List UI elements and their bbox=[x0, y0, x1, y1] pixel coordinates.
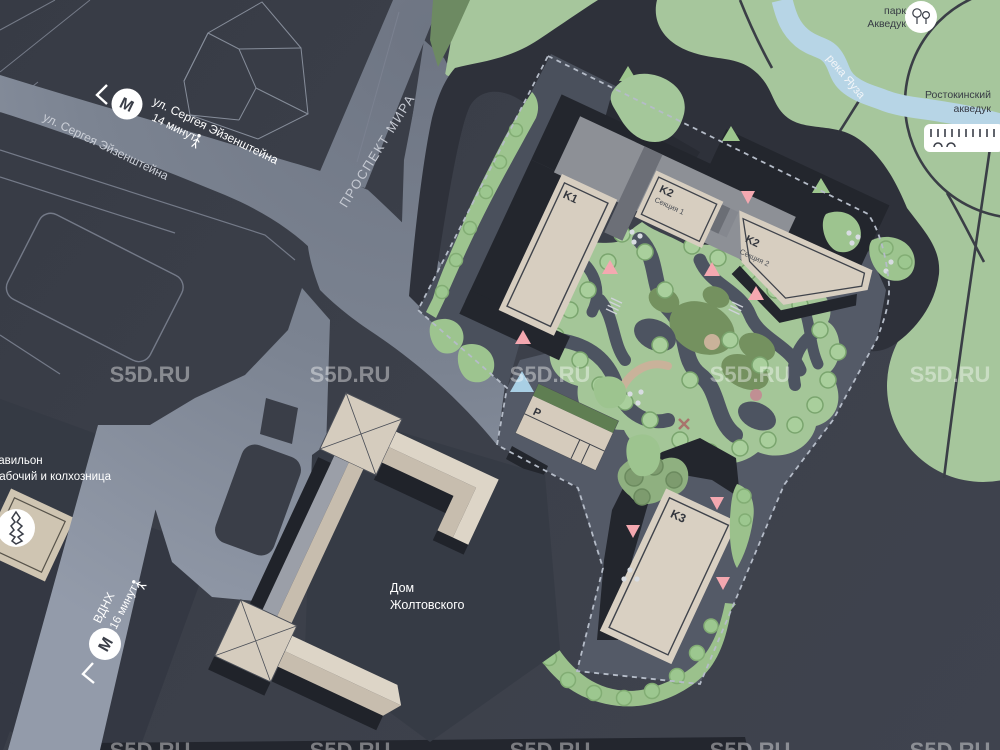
svg-text:Жолтовского: Жолтовского bbox=[390, 598, 465, 612]
svg-text:павильон: павильон bbox=[0, 455, 43, 467]
svg-text:S5D.RU: S5D.RU bbox=[710, 738, 791, 750]
svg-text:S5D.RU: S5D.RU bbox=[910, 738, 991, 750]
svg-text:S5D.RU: S5D.RU bbox=[110, 738, 191, 750]
svg-text:S5D.RU: S5D.RU bbox=[510, 362, 591, 387]
svg-text:Ростокинский: Ростокинский bbox=[925, 89, 991, 101]
svg-text:S5D.RU: S5D.RU bbox=[310, 738, 391, 750]
svg-text:Дом: Дом bbox=[390, 581, 414, 595]
svg-text:S5D.RU: S5D.RU bbox=[510, 738, 591, 750]
svg-text:парк: парк bbox=[884, 5, 906, 17]
svg-text:S5D.RU: S5D.RU bbox=[310, 362, 391, 387]
svg-text:Акведук: Акведук bbox=[867, 18, 906, 30]
svg-text:Рабочий и колхозница: Рабочий и колхозница bbox=[0, 471, 112, 483]
svg-text:S5D.RU: S5D.RU bbox=[910, 362, 991, 387]
svg-text:S5D.RU: S5D.RU bbox=[110, 362, 191, 387]
svg-text:S5D.RU: S5D.RU bbox=[710, 362, 791, 387]
svg-text:акведук: акведук bbox=[954, 103, 992, 115]
